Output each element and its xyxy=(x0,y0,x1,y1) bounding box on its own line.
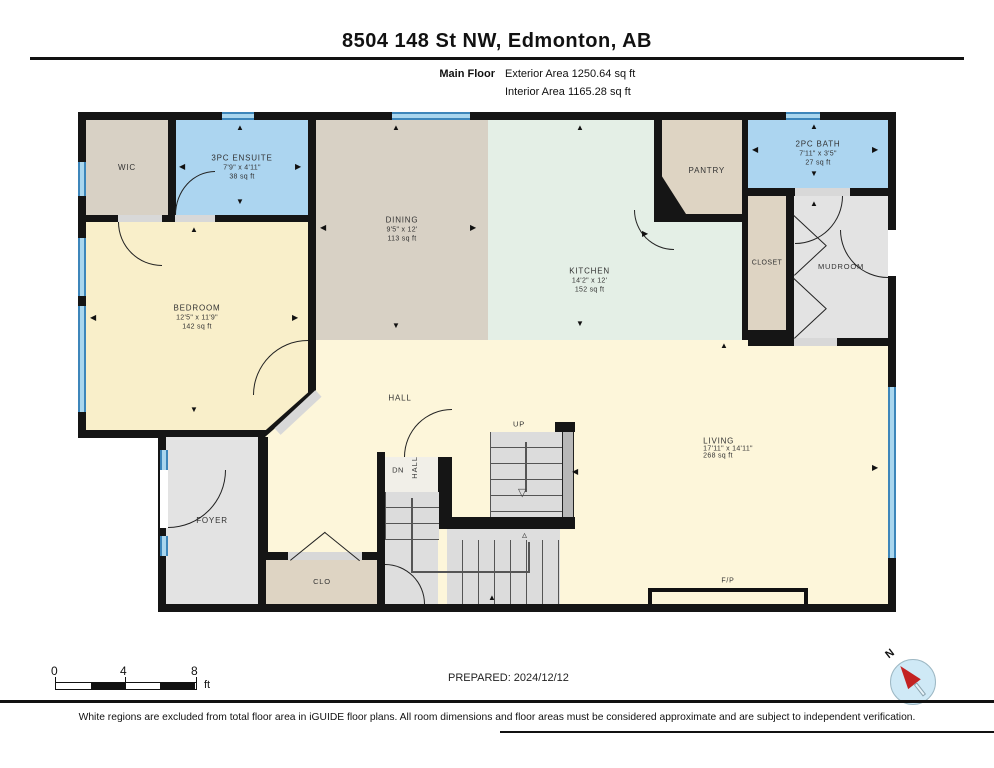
window-wic xyxy=(78,162,86,196)
wic-door-threshold xyxy=(118,215,162,222)
floor-plan: WIC 3PC ENSUITE 7'9" x 4'11" 38 sq ft DI… xyxy=(78,112,896,612)
window-bedroom-1 xyxy=(78,238,86,296)
marker-arrow: ▲ xyxy=(576,124,584,132)
bath-door-threshold xyxy=(795,188,850,196)
footer-disclaimer: White regions are excluded from total fl… xyxy=(0,712,994,723)
room-living xyxy=(748,346,888,604)
marker-arrow: ▲ xyxy=(190,226,198,234)
room-kitchen: KITCHEN 14'2" x 12' 152 sq ft xyxy=(488,222,742,340)
window-bath xyxy=(786,112,820,120)
marker-arrow: ▶ xyxy=(295,163,301,171)
page-title: 8504 148 St NW, Edmonton, AB xyxy=(0,30,994,53)
front-door-opening xyxy=(160,470,168,528)
marker-arrow: ▲ xyxy=(720,342,728,350)
ensuite-door-threshold xyxy=(175,215,215,222)
marker-arrow: ◀ xyxy=(320,224,326,232)
stair-mid-landing xyxy=(447,529,560,540)
up-stairs-run xyxy=(490,432,563,517)
window-foyer-1 xyxy=(160,450,168,470)
stair-hall-label: HALL xyxy=(410,456,419,479)
fireplace xyxy=(648,588,808,604)
up-label: UP xyxy=(513,420,525,429)
room-closet: CLOSET xyxy=(748,196,786,330)
up-arrow-head: ▵ xyxy=(522,531,527,541)
footer-bottom-line xyxy=(500,731,994,733)
dn-path-h xyxy=(411,571,530,573)
stair-wall-left xyxy=(377,452,385,604)
marker-arrow: ▲ xyxy=(488,594,496,602)
scale-tick-0: 0 xyxy=(51,664,58,678)
dn-label: DN xyxy=(392,466,404,475)
marker-arrow: ▶ xyxy=(872,146,878,154)
marker-arrow: ▼ xyxy=(236,198,244,206)
marker-arrow: ▶ xyxy=(292,314,298,322)
marker-arrow: ▶ xyxy=(470,224,476,232)
marker-arrow: ▲ xyxy=(810,200,818,208)
header-divider xyxy=(30,57,964,60)
room-kitchen-upper xyxy=(488,120,654,222)
window-bedroom-2 xyxy=(78,306,86,412)
marker-arrow: ◀ xyxy=(90,314,96,322)
dn-path-v xyxy=(411,498,413,572)
up-stair-wall-bottom xyxy=(447,517,575,529)
marker-arrow: ▲ xyxy=(392,124,400,132)
window-living xyxy=(888,387,896,558)
room-clo: CLO xyxy=(266,560,378,604)
clo-wall-left xyxy=(258,552,288,560)
window-ensuite xyxy=(222,112,254,120)
scale-tick-4: 4 xyxy=(120,664,127,678)
scale-unit: ft xyxy=(204,679,210,691)
room-wic: WIC xyxy=(86,120,168,215)
compass-n-label: N xyxy=(883,647,897,661)
hall-label: HALL xyxy=(388,394,411,403)
mudroom-exterior-door-opening xyxy=(888,230,896,276)
excluded-region xyxy=(78,438,158,612)
up-arrow-line xyxy=(525,442,527,492)
exterior-area: Exterior Area 1250.64 sq ft xyxy=(505,68,635,80)
room-dining: DINING 9'5" x 12' 113 sq ft xyxy=(316,120,488,340)
marker-arrow: ▶ xyxy=(642,230,648,238)
marker-arrow: ▼ xyxy=(392,322,400,330)
marker-arrow: ▶ xyxy=(872,464,878,472)
interior-area: Interior Area 1165.28 sq ft xyxy=(505,86,631,98)
marker-arrow: ◀ xyxy=(179,163,185,171)
marker-arrow: ▲ xyxy=(810,123,818,131)
up-stair-wall-stub xyxy=(555,422,575,432)
room-bedroom: BEDROOM 12'5" x 11'9" 142 sq ft xyxy=(86,222,308,430)
marker-arrow: ◀ xyxy=(572,468,578,476)
scale-tick-8: 8 xyxy=(191,664,198,678)
mudroom-step xyxy=(794,338,837,346)
floor-label: Main Floor xyxy=(370,68,495,80)
window-foyer-2 xyxy=(160,536,168,556)
fireplace-label: F/P xyxy=(721,578,734,585)
marker-arrow: ▲ xyxy=(236,124,244,132)
prepared-date: PREPARED: 2024/12/12 xyxy=(448,672,569,684)
window-dining xyxy=(392,112,470,120)
marker-arrow: ◀ xyxy=(752,146,758,154)
marker-arrow: ▼ xyxy=(576,320,584,328)
footer-divider xyxy=(0,700,994,703)
marker-arrow: ▼ xyxy=(190,406,198,414)
room-bath: 2PC BATH 7'11" x 3'5" 27 sq ft xyxy=(748,120,888,188)
dn-path-v2 xyxy=(528,542,530,572)
scale-bar xyxy=(55,682,197,690)
down-arrow-head: ▽ xyxy=(518,488,526,499)
marker-arrow: ▼ xyxy=(810,170,818,178)
